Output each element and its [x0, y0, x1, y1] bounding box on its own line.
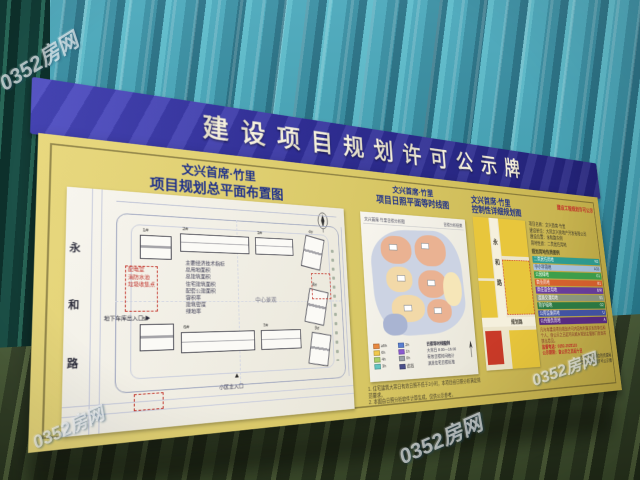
red-annotation-box: [311, 273, 331, 299]
panel-site-plan: 文兴首席·竹里 项目规划总平面布置图 永 和 路: [55, 148, 359, 440]
building-block: [421, 243, 429, 249]
building-block: [389, 244, 398, 251]
zoning-legend-bar: 公园绿地G1: [534, 271, 602, 279]
map-road-char: 永: [493, 237, 499, 247]
zoning-legend-bar: 公用设施用地U: [538, 309, 606, 316]
building-footprint: 7#: [261, 329, 302, 350]
legend-label: 道路交通用地: [538, 295, 559, 302]
red-annotation-text: 垃圾收集点: [126, 281, 157, 289]
panel-sunshine-analysis: 文兴首席·竹里 项目日照平面等时线图 文兴首席·竹里日照分析图 日照分析结果: [356, 180, 483, 407]
zoning-parcel: [509, 330, 540, 369]
technical-indicator-list: 主要经济技术指标 总用地面积 总建筑面积 住宅建筑面积 配套公建面积 容积率 建…: [185, 260, 248, 316]
legend-chip-label: 0h: [406, 356, 410, 361]
legend-chip-label: 4h: [382, 358, 386, 363]
legend-chip-label: 1h: [406, 350, 410, 355]
road-label-char: 永: [69, 240, 80, 255]
sheet-header-right: 日照分析结果: [443, 221, 462, 228]
legend-chip-label: 遮挡: [407, 364, 414, 369]
road-line: [98, 189, 102, 433]
indicator-line: 绿地率: [186, 309, 248, 317]
legend-code: B1: [597, 280, 601, 286]
legend-label: 二类居住用地: [534, 256, 554, 263]
main-entrance-label: 小区主入口: [219, 381, 244, 391]
legend-chip-row: ≥8h: [373, 343, 387, 349]
red-annotation-text: 消防水池: [126, 274, 157, 282]
legend-chip-label: 6h: [381, 351, 385, 356]
zoning-legend-bar: 商住混合用地B/R: [535, 287, 603, 294]
zoning-legend-bar: 防护绿地G2: [537, 302, 605, 309]
building-footprint: 6#: [181, 330, 255, 353]
legend-code: U: [602, 309, 605, 315]
legend-code: G1: [596, 273, 601, 279]
legend-chip-label: 2h: [405, 343, 409, 348]
sunshine-legend-notes: 日照等时线图例 大寒日 8:00—16:00 有效日照时间统计 满足住宅日照标准: [426, 339, 463, 366]
legend-code: R2: [594, 259, 599, 265]
map-road-label: 规划路: [511, 318, 523, 325]
legend-chip: [398, 343, 404, 348]
building-footprint: 3#: [255, 237, 294, 256]
legend-label: 公用设施用地: [539, 310, 560, 317]
zoning-parcel: [498, 219, 529, 258]
legend-code: B/R: [597, 288, 603, 294]
road-label-char: 和: [68, 297, 79, 312]
zoning-legend-bar: 道路交通用地S1: [536, 295, 604, 302]
building-label: 1#: [143, 228, 149, 233]
legend-code: G2: [599, 302, 604, 308]
legend-chip-row: 2h: [398, 342, 410, 348]
regulatory-info-column: 项目名称：文兴首席·竹里 建设单位：大同文兴房地产开发有限公司 建设位置：永和路…: [528, 221, 612, 369]
legend-chip: [399, 364, 405, 370]
legend-chip: [374, 357, 381, 363]
site-plan-sheet: 永 和 路 1# 2# 3# 4#: [61, 187, 355, 438]
building-footprint: 2#: [180, 233, 249, 254]
sunshine-patch: [382, 313, 408, 335]
legend-code: A33: [594, 266, 600, 272]
map-road-char: 和: [495, 257, 501, 267]
legend-chip: [374, 364, 381, 370]
building-block: [397, 275, 406, 282]
building-footprint: 1#: [140, 235, 172, 260]
legend-chip-row: 遮挡: [399, 362, 414, 370]
legend-label: 公园绿地: [535, 271, 549, 278]
road-line: [88, 189, 93, 435]
legend-chip-row: 4h: [374, 357, 386, 363]
legend-label: 中小学用地: [534, 264, 551, 271]
zoning-legend-bar: 商业用地B1: [535, 279, 603, 286]
legend-label: 公共服务用地: [540, 318, 561, 325]
sunshine-notes: 1. 住宅建筑大寒日有效日照不低于2小时，本项目经日照分析满足规范要求。 2. …: [368, 378, 483, 407]
legend-chip-row: 3h: [374, 364, 386, 370]
legend-chip-row: 0h: [399, 355, 411, 361]
legend-code: A: [603, 317, 606, 323]
building-footprint: 5#: [140, 324, 174, 352]
legend-chip-label: 3h: [382, 364, 386, 369]
photo-scene: 建设项目规划许可公示牌 文兴首席·竹里 项目规划总平面布置图 永 和 路: [0, 0, 640, 480]
building-block: [427, 280, 435, 286]
legend-code: S1: [599, 295, 603, 301]
zoning-parcel-red: [485, 331, 504, 365]
building-footprint: 9#: [309, 332, 332, 366]
red-annotation-box: 配电室 消防水池 垃圾收集点: [125, 265, 158, 311]
building-label: 9#: [314, 326, 319, 331]
sunshine-sheet: 文兴首席·竹里日照分析图 日照分析结果: [360, 211, 479, 382]
building-label: 6#: [183, 325, 189, 330]
isochrone-map: [370, 227, 468, 336]
building-label: 4#: [308, 230, 313, 236]
map-road-char: 路: [496, 277, 502, 287]
building-block: [404, 305, 413, 311]
building-label: 2#: [183, 227, 189, 232]
entrance-marker-icon: ▲: [234, 371, 241, 379]
red-annotation-text: 配电室: [126, 266, 157, 274]
legend-chip-row: 6h: [373, 350, 385, 356]
zoning-parcel: [478, 281, 497, 318]
zoning-legend-bar: 公共服务用地A: [539, 317, 607, 325]
project-site-parcel: [502, 260, 535, 315]
road-label-char: 路: [67, 356, 79, 372]
legend-label: 防护绿地: [539, 302, 553, 309]
building-label: 7#: [263, 323, 268, 328]
zoning-road: [482, 317, 536, 327]
legend-chip: [373, 344, 380, 350]
legend-chip-label: ≥8h: [381, 344, 387, 349]
central-landscape-label: 中心景观: [255, 296, 276, 304]
north-arrow-icon: [468, 340, 475, 358]
legend-label: 商住混合用地: [537, 287, 558, 294]
red-stamp-text: 建设工程规划许可公示: [545, 202, 594, 214]
legend-chip: [373, 350, 380, 356]
building-label: 3#: [257, 231, 262, 236]
legend-chip: [398, 349, 404, 354]
garage-entrance-label: 地下车库出入口 ▶: [104, 313, 158, 322]
legend-note: 满足住宅日照标准: [428, 358, 463, 367]
building-block: [434, 307, 442, 313]
legend-chip: [399, 356, 405, 362]
legend-label: 商业用地: [536, 279, 550, 286]
legend-chip-row: 1h: [398, 349, 410, 355]
red-annotation-box: [134, 392, 164, 411]
